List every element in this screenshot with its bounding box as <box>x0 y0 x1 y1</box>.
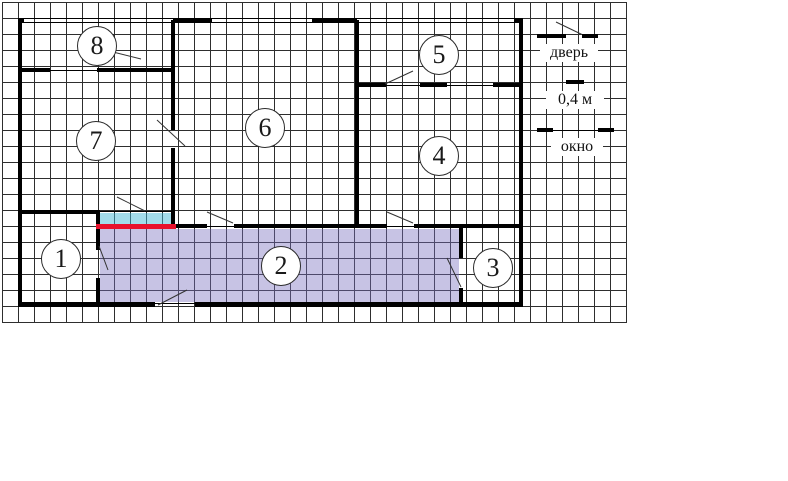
legend-scale-tick <box>566 80 584 84</box>
wall-segment <box>459 288 463 303</box>
red-wall-highlight <box>96 224 176 229</box>
wall-segment <box>175 224 207 228</box>
window-symbol <box>24 18 173 23</box>
doorway-line <box>100 211 175 212</box>
doorway-line <box>447 85 493 86</box>
cyan-strip-highlight <box>100 213 171 224</box>
wall-segment <box>459 227 463 258</box>
wall-segment <box>18 68 50 72</box>
wall-segment <box>195 302 523 307</box>
doorway-line <box>387 226 414 227</box>
room-number: 1 <box>55 246 68 272</box>
wall-segment <box>519 18 523 307</box>
wall-segment <box>96 211 100 250</box>
room-number: 2 <box>275 253 288 279</box>
wall-segment <box>171 20 175 130</box>
legend-door-wall <box>582 34 598 38</box>
legend-window-wall <box>537 128 553 132</box>
wall-segment <box>414 224 519 228</box>
legend-door-wall <box>537 34 566 38</box>
doorway-line <box>155 303 195 304</box>
wall-segment <box>18 210 100 214</box>
doorway-line <box>50 70 97 71</box>
wall-segment <box>493 83 519 87</box>
room-number: 4 <box>433 143 446 169</box>
room-label-2: 2 <box>261 246 301 286</box>
legend-window-line <box>553 130 598 131</box>
legend-door-label: дверь <box>540 44 598 62</box>
floor-plan-canvas: 1 2 3 4 5 6 7 8 дверь 0,4 м окно <box>0 0 788 481</box>
room-label-8: 8 <box>77 26 117 66</box>
room-number: 3 <box>487 255 500 281</box>
wall-segment <box>96 278 100 303</box>
window-symbol <box>212 18 312 23</box>
wall-segment <box>173 18 212 23</box>
wall-segment <box>234 224 387 228</box>
doorway-line <box>207 226 234 227</box>
room-number: 6 <box>259 115 272 141</box>
room-number: 7 <box>90 128 103 154</box>
room-label-7: 7 <box>76 121 116 161</box>
doorway-line <box>386 85 420 86</box>
legend-window-label: окно <box>551 138 603 156</box>
wall-segment <box>420 83 447 87</box>
room-label-6: 6 <box>245 108 285 148</box>
wall-segment <box>355 83 386 87</box>
room-label-3: 3 <box>473 248 513 288</box>
wall-segment <box>355 20 359 227</box>
room-label-4: 4 <box>419 136 459 176</box>
room-number: 5 <box>433 42 446 68</box>
room-label-1: 1 <box>41 239 81 279</box>
wall-segment <box>18 302 155 307</box>
legend-scale-label: 0,4 м <box>546 91 604 109</box>
room-number: 8 <box>91 33 104 59</box>
wall-segment <box>312 18 357 23</box>
legend-window-wall <box>598 128 614 132</box>
wall-segment <box>18 18 22 307</box>
room-label-5: 5 <box>419 35 459 75</box>
wall-segment <box>97 68 175 72</box>
wall-segment <box>171 148 175 229</box>
window-symbol <box>357 18 514 23</box>
